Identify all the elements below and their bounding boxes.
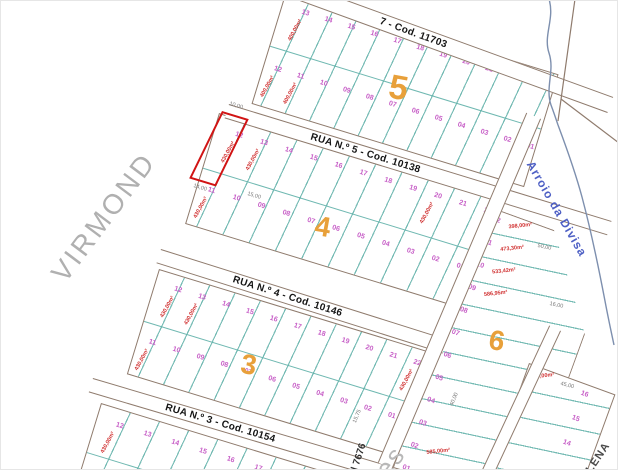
lot-number[interactable]: 10 xyxy=(319,79,329,88)
lot-number[interactable]: 15 xyxy=(245,307,255,316)
lot-number[interactable]: 04 xyxy=(457,121,467,130)
lot-number[interactable]: 18 xyxy=(317,329,327,338)
lot-number[interactable]: 07 xyxy=(451,328,461,337)
lot-area-label: 473,30m² xyxy=(500,246,524,254)
stream-line-north xyxy=(547,1,558,125)
lot-row-divider xyxy=(144,321,410,403)
lot-number[interactable]: 16 xyxy=(269,315,279,324)
lot-area-label: 398,00m² xyxy=(508,223,532,231)
lot-number[interactable]: 12 xyxy=(115,421,125,430)
lot-number[interactable]: 12 xyxy=(273,65,283,74)
road-line-east-bank xyxy=(558,1,575,121)
lot-number[interactable]: 09 xyxy=(342,86,352,95)
lot-number[interactable]: 02 xyxy=(363,404,373,413)
lot-number[interactable]: 02 xyxy=(503,135,513,144)
lot-number[interactable]: 11 xyxy=(296,72,305,81)
lot-area-label: 586,95m² xyxy=(484,291,508,299)
lot-number[interactable]: 02 xyxy=(431,255,441,264)
lot-number[interactable]: 14 xyxy=(284,146,294,155)
lot-number[interactable]: 05 xyxy=(356,232,366,241)
lot-number[interactable]: 21 xyxy=(458,199,468,208)
lot-number[interactable]: 20 xyxy=(365,344,375,353)
lot-number[interactable]: 16 xyxy=(226,455,236,464)
lot-number[interactable]: 03 xyxy=(406,247,416,256)
lot-number[interactable]: 08 xyxy=(365,93,375,102)
lot-number[interactable]: 20 xyxy=(433,192,443,201)
lot-number[interactable]: 03 xyxy=(480,128,490,137)
lot-number[interactable]: 05 xyxy=(291,382,301,391)
lot-number[interactable]: 17 xyxy=(254,464,264,470)
lot-area-label: 430,00m² xyxy=(184,303,200,326)
lot-area-label: 585,00m² xyxy=(426,448,450,456)
lot-number[interactable]: 12 xyxy=(173,286,183,295)
lot-number[interactable]: 11 xyxy=(207,186,216,195)
lot-number[interactable]: 16 xyxy=(580,390,590,399)
lot-number[interactable]: 11 xyxy=(148,338,157,347)
lot-area-label: 430,00m² xyxy=(246,149,262,172)
lot-number[interactable]: 06 xyxy=(267,375,277,384)
lot-number[interactable]: 06 xyxy=(411,107,421,116)
lot-area-label: 400,00m² xyxy=(283,82,299,105)
lot-number[interactable]: 14 xyxy=(170,438,180,447)
lot-area-label: 430,00m² xyxy=(420,202,436,225)
lot-number[interactable]: 16 xyxy=(334,161,344,170)
lot-number[interactable]: 10 xyxy=(172,346,182,355)
lot-area-label: 400,00m² xyxy=(288,19,304,42)
lot-number[interactable]: 06 xyxy=(442,351,452,360)
lot-number[interactable]: 14 xyxy=(221,300,231,309)
lot-number[interactable]: 15 xyxy=(309,154,319,163)
lot-number[interactable]: 19 xyxy=(341,337,351,346)
lot-area-label: 400,00m² xyxy=(260,75,276,98)
lot-area-label: 430,00m² xyxy=(193,196,209,219)
lot-number[interactable]: 13 xyxy=(259,138,269,147)
lot-area-label: 430,00m² xyxy=(101,431,117,454)
lot-number[interactable]: 04 xyxy=(426,396,436,405)
lot-number[interactable]: 17 xyxy=(293,322,303,331)
lot-number[interactable]: 09 xyxy=(257,201,267,210)
lot-number[interactable]: 14 xyxy=(562,439,572,448)
lot-number[interactable]: 13 xyxy=(197,293,207,302)
lot-number[interactable]: 02 xyxy=(410,441,420,450)
cadastral-map: 13400,00m²14151617181920212212400,00m²11… xyxy=(0,0,618,470)
lot-number[interactable]: 03 xyxy=(418,419,428,428)
lot-number[interactable]: 04 xyxy=(381,239,391,248)
lot-number[interactable]: 10 xyxy=(232,194,242,203)
lot-row-divider xyxy=(87,452,305,470)
lot-number[interactable]: 21 xyxy=(389,351,399,360)
lot-number[interactable]: 05 xyxy=(434,114,444,123)
lot-number[interactable]: 17 xyxy=(359,169,369,178)
lot-number[interactable]: 15 xyxy=(571,414,581,423)
lot-number[interactable]: 05 xyxy=(434,374,444,383)
lot-area-label: 430,00m² xyxy=(135,349,151,372)
lot-number[interactable]: 17 xyxy=(393,37,403,46)
street-name-virmond: VIRMOND xyxy=(47,148,162,287)
lot-number[interactable]: 04 xyxy=(315,390,325,399)
lot-number[interactable]: 19 xyxy=(408,184,418,193)
lot-number[interactable]: 08 xyxy=(220,360,230,369)
lot-number[interactable]: 18 xyxy=(383,176,393,185)
lot-area-label: 533,42m² xyxy=(492,268,516,276)
lot-number[interactable]: 13 xyxy=(301,9,311,18)
lot-number[interactable]: 09 xyxy=(196,353,206,362)
lot-number[interactable]: 15 xyxy=(198,447,208,456)
lot-number[interactable]: 13 xyxy=(143,430,153,439)
lot-number[interactable]: 15 xyxy=(347,23,357,32)
lot-number[interactable]: 14 xyxy=(324,16,334,25)
lot-number[interactable]: 08 xyxy=(281,209,291,218)
lot-area-label: 430,00m² xyxy=(160,296,176,319)
lot-number[interactable]: 06 xyxy=(331,224,341,233)
lot-number[interactable]: 03 xyxy=(339,397,349,406)
lot-number[interactable]: 16 xyxy=(370,30,380,39)
